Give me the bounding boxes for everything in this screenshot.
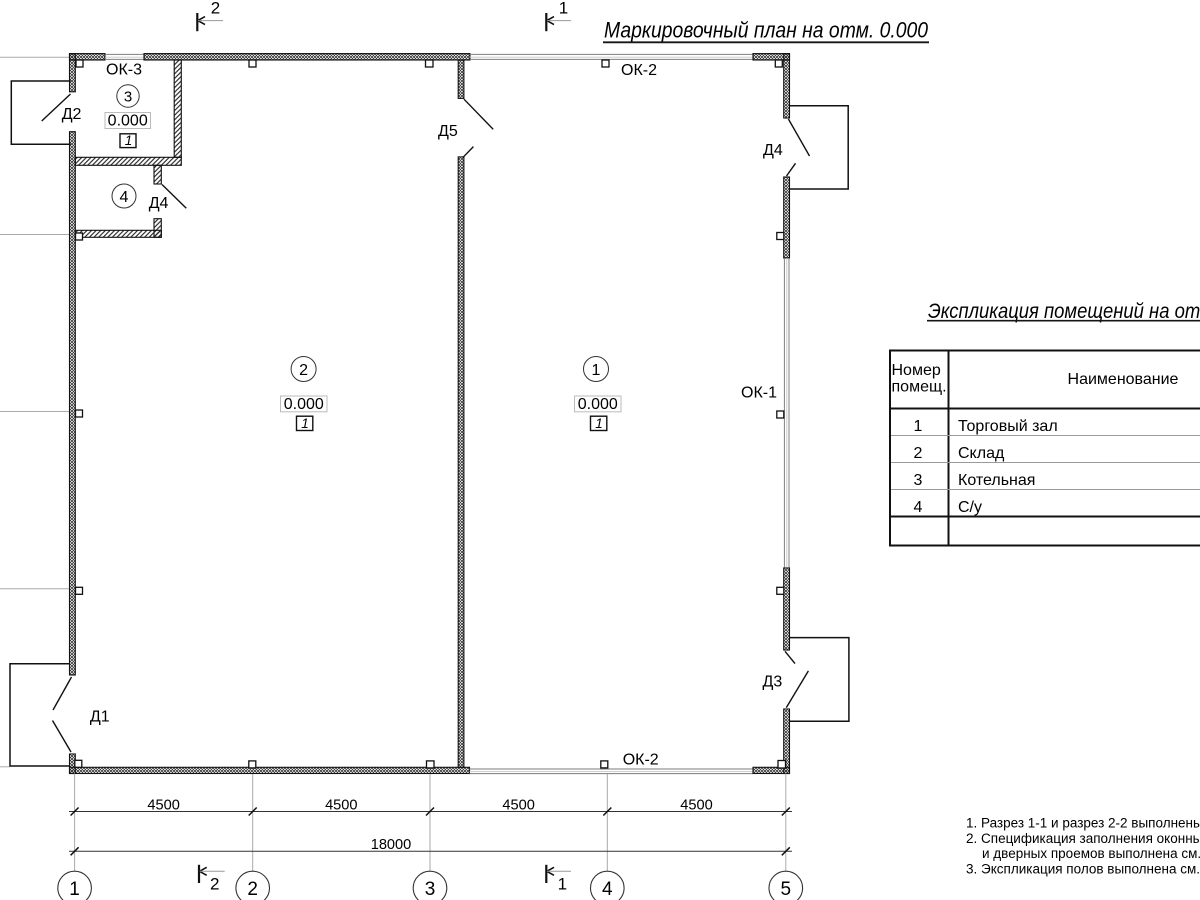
svg-text:2: 2 xyxy=(211,0,220,17)
svg-text:С/у: С/у xyxy=(958,499,982,516)
svg-text:3: 3 xyxy=(425,879,436,900)
svg-text:и дверных проемов выполнена см: и дверных проемов выполнена см. ли xyxy=(982,846,1200,861)
svg-text:Экспликация помещений на отм.: Экспликация помещений на отм. 0.000 xyxy=(928,300,1200,323)
svg-text:Торговый зал: Торговый зал xyxy=(958,418,1058,435)
svg-text:2. Спецификация заполнения око: 2. Спецификация заполнения оконных xyxy=(966,831,1200,846)
svg-text:Д1: Д1 xyxy=(90,709,110,726)
svg-text:3. Экспликация полов выполнена: 3. Экспликация полов выполнена см. ли xyxy=(966,861,1200,876)
svg-text:4500: 4500 xyxy=(147,797,179,813)
svg-text:Д4: Д4 xyxy=(763,142,783,159)
svg-text:помещ.: помещ. xyxy=(892,379,947,396)
svg-text:3: 3 xyxy=(124,89,132,106)
svg-text:4: 4 xyxy=(602,879,613,900)
svg-text:1: 1 xyxy=(592,362,601,379)
svg-text:Наименование: Наименование xyxy=(1068,371,1179,388)
svg-text:1: 1 xyxy=(558,874,567,893)
svg-text:ОК-1: ОК-1 xyxy=(741,385,777,402)
svg-text:Склад: Склад xyxy=(958,445,1005,462)
svg-text:4500: 4500 xyxy=(680,797,712,813)
svg-text:1: 1 xyxy=(125,133,133,148)
svg-text:4500: 4500 xyxy=(325,797,357,813)
svg-text:4: 4 xyxy=(120,189,129,206)
svg-text:2: 2 xyxy=(299,362,308,379)
svg-text:4500: 4500 xyxy=(502,797,534,813)
svg-text:Д3: Д3 xyxy=(763,674,783,691)
svg-text:1: 1 xyxy=(595,416,603,431)
svg-text:Номер: Номер xyxy=(892,362,941,379)
svg-text:4: 4 xyxy=(914,499,923,516)
svg-text:ОК-3: ОК-3 xyxy=(106,62,142,79)
svg-text:1: 1 xyxy=(914,418,923,435)
svg-text:Котельная: Котельная xyxy=(958,472,1035,489)
svg-text:Д2: Д2 xyxy=(62,106,82,123)
svg-text:ОК-2: ОК-2 xyxy=(623,752,659,769)
svg-text:Д5: Д5 xyxy=(438,123,458,140)
svg-text:0.000: 0.000 xyxy=(578,396,618,413)
svg-text:Маркировочный план на отм. 0.0: Маркировочный план на отм. 0.000 xyxy=(604,18,929,43)
svg-text:5: 5 xyxy=(781,879,792,900)
svg-text:2: 2 xyxy=(247,879,258,900)
svg-text:3: 3 xyxy=(914,472,923,489)
svg-text:0.000: 0.000 xyxy=(108,113,148,130)
svg-text:0.000: 0.000 xyxy=(284,396,324,413)
svg-text:1: 1 xyxy=(559,0,568,17)
svg-text:1: 1 xyxy=(69,879,80,900)
svg-text:2: 2 xyxy=(210,874,219,893)
svg-text:2: 2 xyxy=(914,445,923,462)
svg-text:1. Разрез 1-1 и разрез 2-2 вып: 1. Разрез 1-1 и разрез 2-2 выполнены по … xyxy=(966,816,1200,831)
svg-text:18000: 18000 xyxy=(371,837,412,853)
svg-text:ОК-2: ОК-2 xyxy=(621,62,657,79)
svg-text:1: 1 xyxy=(301,416,309,431)
svg-text:Д4: Д4 xyxy=(149,195,169,212)
